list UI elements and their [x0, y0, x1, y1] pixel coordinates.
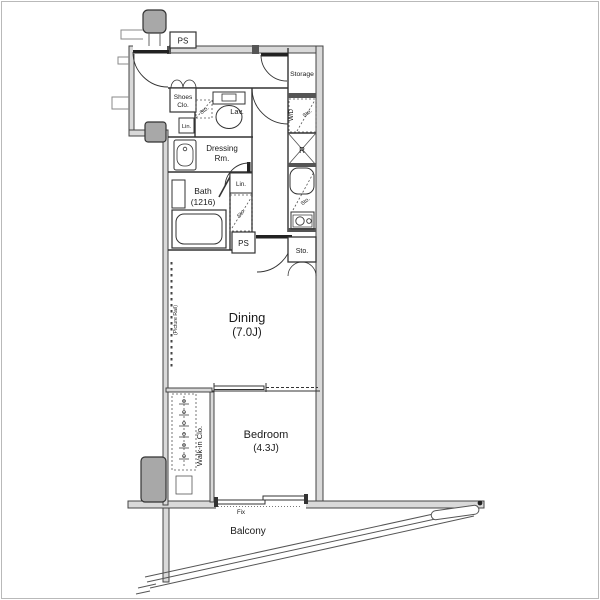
- window-jamb-left: [214, 497, 218, 507]
- railing-corner-dot: [478, 501, 483, 506]
- kitchen-sto-cabinet: Sto.: [288, 237, 316, 276]
- pipe-space-top: PS: [170, 32, 196, 48]
- dressing-room: Dressing Rm.: [174, 140, 238, 170]
- entrance-door-arc: [133, 52, 168, 87]
- wd-label: W/D: [288, 108, 295, 121]
- corridor-door-arc: [252, 88, 288, 124]
- dressing-label: Dressing: [206, 144, 238, 153]
- dining-door: [256, 235, 292, 272]
- bathroom: Bath (1216): [172, 180, 226, 248]
- kitchen-sink: [290, 168, 314, 194]
- dining-label: Dining: [229, 310, 266, 325]
- picture-rail: (Picture Rail): [172, 262, 180, 368]
- wall-walkin-right: [210, 392, 214, 502]
- shoes-closet-label: Shoes: [174, 94, 193, 101]
- fix-window-label: Fix: [237, 510, 245, 516]
- balcony-label: Balcony: [230, 526, 266, 537]
- balcony-railing: [136, 501, 482, 594]
- closet-drawer: [176, 476, 192, 494]
- bathtub-inner: [176, 214, 222, 244]
- linen-closet-bath: Lin.: [230, 173, 252, 193]
- sto-cabinet-door-arcs: [288, 262, 316, 276]
- floor-plan: Shoes Clo. Sto. Lav. Lin. Dressing Rm. B…: [0, 0, 600, 600]
- hall-door: [261, 53, 288, 81]
- storage-label: Storage: [290, 71, 314, 78]
- entrance-door-leaf: [133, 50, 169, 54]
- dining-door-arc: [257, 237, 292, 272]
- wall-left-lower: [163, 130, 168, 505]
- interior-walls: [168, 48, 316, 250]
- washbasin-faucet: [183, 147, 187, 151]
- sto-bath-label: Sto.: [236, 208, 247, 220]
- lav-label: Lav.: [230, 107, 244, 116]
- sto-bath-shelf: Sto.: [230, 195, 252, 231]
- bathtub-outer: [172, 210, 226, 248]
- linen-upper-label: Lin.: [182, 124, 192, 130]
- window-jamb-right: [304, 494, 308, 504]
- sto-wd-label: Sto.: [302, 108, 314, 119]
- dining-size-label: (7.0J): [232, 327, 262, 339]
- stove: [291, 212, 314, 229]
- wall-dining-bedroom: [166, 388, 212, 392]
- doors: [133, 50, 292, 272]
- neighbor-stubs: [112, 30, 143, 109]
- fridge-label: R: [299, 146, 305, 155]
- pipe-space-mid: PS: [232, 232, 255, 253]
- stove-burner-large: [296, 217, 304, 225]
- picture-rail-label: (Picture Rail): [173, 305, 179, 335]
- bath-counter: [172, 180, 185, 208]
- toilet-sto-label: Sto.: [199, 105, 211, 116]
- floor-plan-drawing: Shoes Clo. Sto. Lav. Lin. Dressing Rm. B…: [0, 0, 600, 600]
- ps-mid-label: PS: [238, 239, 249, 248]
- pillar-bottom: [141, 457, 166, 502]
- window-panel-left: [217, 500, 265, 504]
- sto-sink-label: Sto.: [300, 196, 312, 207]
- linen-bath-label: Lin.: [236, 181, 246, 188]
- shoes-closet-label2: Clo.: [177, 102, 189, 109]
- window-panel-right: [263, 496, 305, 500]
- walk-in-label: Walk-in Clo.: [195, 426, 204, 466]
- wall-right: [316, 46, 323, 508]
- sliding-door: [212, 383, 320, 392]
- dressing-label2: Rm.: [215, 154, 230, 163]
- bath-size-label: (1216): [191, 197, 216, 207]
- bath-door: [219, 175, 231, 197]
- shoes-closet-door-arcs: [171, 80, 196, 88]
- wall-balcony-left: [163, 508, 169, 582]
- ps-top-label: PS: [178, 37, 189, 46]
- linen-closet-upper: Lin.: [179, 118, 194, 133]
- bath-label: Bath: [194, 186, 212, 196]
- bedroom-size-label: (4.3J): [253, 443, 279, 454]
- bedroom-label: Bedroom: [244, 429, 289, 441]
- stove-burner-small: [307, 219, 312, 224]
- sto-kitchen-label: Sto.: [296, 248, 309, 255]
- wall-left-upper: [129, 46, 134, 136]
- washer-dryer-space: W/D Sto.: [288, 99, 316, 132]
- pillar-middle: [145, 122, 166, 142]
- walk-in-closet: Walk-in Clo.: [172, 394, 204, 494]
- hall-door-leaf: [261, 53, 288, 57]
- entrance-door: [133, 50, 169, 87]
- shoes-closet: Shoes Clo.: [170, 80, 196, 112]
- toilet-tank-lid: [222, 94, 236, 101]
- kitchen: Sto.: [290, 168, 314, 229]
- toilet-room: Sto. Lav.: [196, 92, 245, 129]
- refrigerator-space: R: [288, 133, 316, 165]
- dining-door-leaf: [256, 235, 292, 239]
- pillar-top: [143, 10, 166, 33]
- pillar-neck-lines: [149, 33, 160, 46]
- hall-door-arc: [261, 55, 287, 81]
